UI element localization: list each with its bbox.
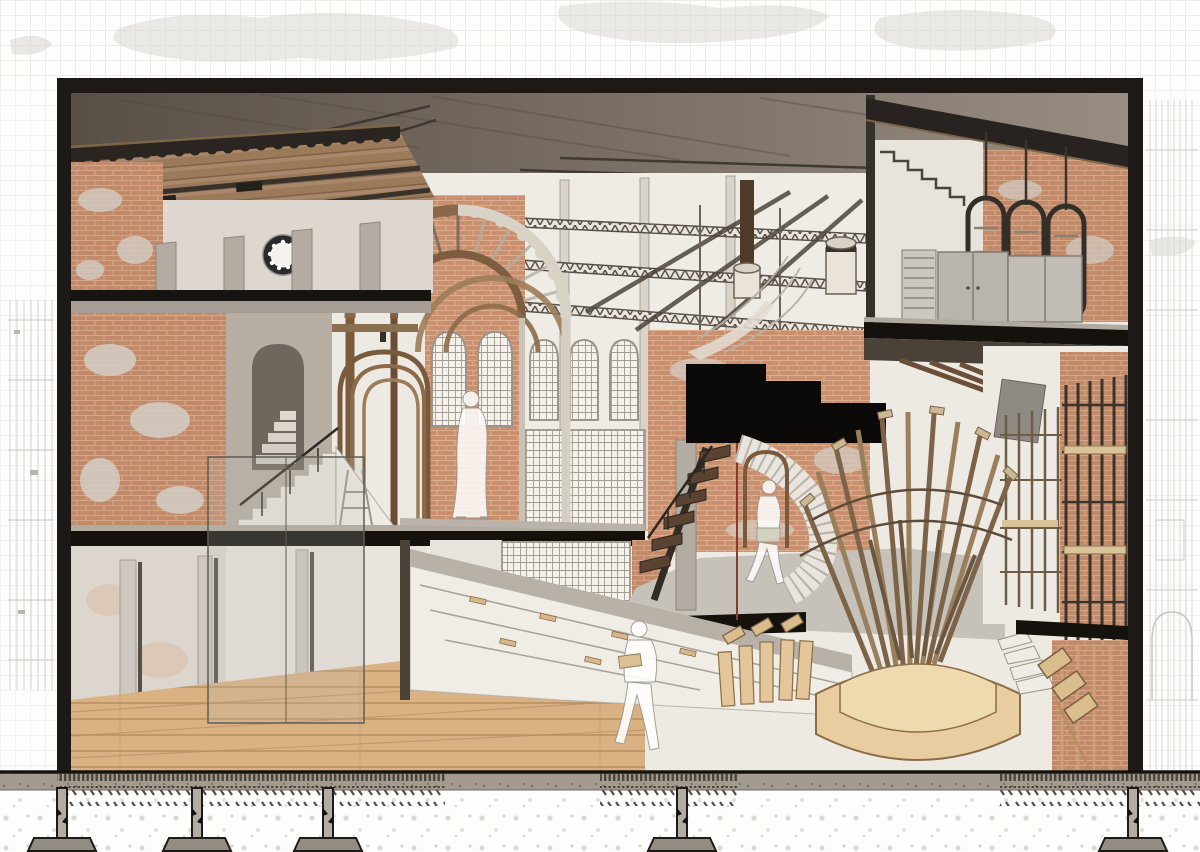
grid-paper-left bbox=[0, 80, 57, 772]
wedge-post bbox=[400, 540, 410, 700]
frame-top bbox=[57, 78, 1143, 93]
frame-left bbox=[57, 78, 71, 774]
mezzanine-cabinets bbox=[902, 250, 1082, 322]
section-cut-edge bbox=[866, 95, 875, 327]
interior bbox=[0, 78, 1200, 851]
rebar-hatch-segments bbox=[57, 774, 1200, 788]
drawing-stage bbox=[0, 0, 1200, 852]
frame-right bbox=[1128, 84, 1143, 774]
section-drawing bbox=[0, 0, 1200, 852]
floor-slab-upper bbox=[71, 290, 431, 301]
slab-soffit-upper bbox=[71, 301, 431, 313]
window-grid-mid bbox=[525, 430, 645, 530]
brick-patch-right-room bbox=[1060, 352, 1128, 632]
soil-hatch-segments bbox=[57, 790, 1200, 806]
book bbox=[618, 654, 641, 669]
